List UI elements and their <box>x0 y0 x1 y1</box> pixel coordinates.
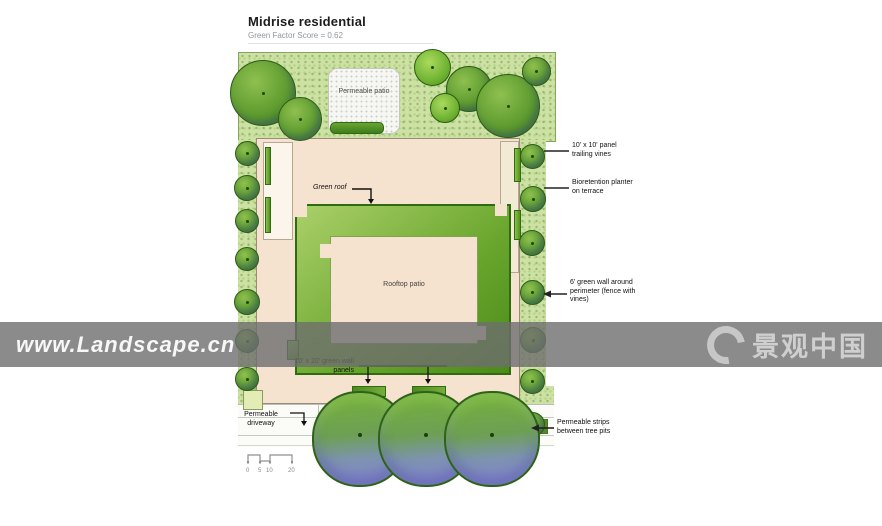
tree-icon <box>235 367 259 391</box>
tree-icon <box>235 247 259 271</box>
tree-icon <box>414 49 451 86</box>
hedge <box>330 122 384 134</box>
site-plan-figure: Midrise residential Green Factor Score =… <box>0 0 882 526</box>
scale-tick <box>269 461 271 464</box>
tree-icon <box>235 209 259 233</box>
tree-icon <box>519 230 545 256</box>
page-title: Midrise residential <box>248 14 366 29</box>
permeable-driveway-label: Permeable driveway <box>236 411 286 428</box>
vine-panel <box>265 197 271 233</box>
watermark-left-text: www.Landscape.cn <box>16 332 235 358</box>
roof-step <box>495 204 507 216</box>
tree-icon <box>234 289 260 315</box>
scale-tick-label: 10 <box>266 468 273 474</box>
permeable-patio-label: Permeable patio <box>337 87 391 96</box>
tree-icon <box>520 280 545 305</box>
tree-icon <box>520 144 545 169</box>
watermark-right-logo: 景观中国 <box>707 325 868 364</box>
permeable-driveway-area <box>243 390 263 410</box>
vine-panel <box>265 147 271 185</box>
callout-bioretention-planter: Bioretention planter on terrace <box>572 179 638 196</box>
scale-tick-label: 5 <box>258 468 262 474</box>
callout-perimeter-green-wall: 6' green wall around perimeter (fence wi… <box>570 279 638 305</box>
scale-tick-label: 20 <box>288 468 295 474</box>
rooftop-patio-label: Rooftop patio <box>331 281 477 288</box>
watermark-right-text: 景观中国 <box>752 325 868 364</box>
scale-bar <box>248 455 292 461</box>
watermark-bar: www.Landscape.cn 景观中国 <box>0 322 882 367</box>
tree-icon <box>520 186 546 212</box>
tree-icon <box>234 175 260 201</box>
callout-trailing-vines: 10' x 10' panel trailing vines <box>572 142 624 159</box>
scale-tick <box>291 461 293 464</box>
tree-icon <box>520 369 545 394</box>
green-factor-score: Green Factor Score = 0.62 <box>248 31 343 40</box>
roof-step <box>295 204 307 217</box>
tree-icon <box>235 141 260 166</box>
tree-icon <box>430 93 460 123</box>
green-roof-label: Green roof <box>313 184 346 193</box>
street-tree-icon <box>444 391 540 487</box>
scale-tick <box>259 461 261 464</box>
roof-step <box>320 244 332 258</box>
scale-tick <box>247 461 249 464</box>
tree-icon <box>278 97 322 141</box>
tree-icon <box>522 57 551 86</box>
landscape-china-logo-icon <box>700 318 753 371</box>
callout-permeable-strips: Permeable strips between tree pits <box>557 419 613 436</box>
divider <box>248 43 433 44</box>
scale-tick-label: 0 <box>246 468 250 474</box>
